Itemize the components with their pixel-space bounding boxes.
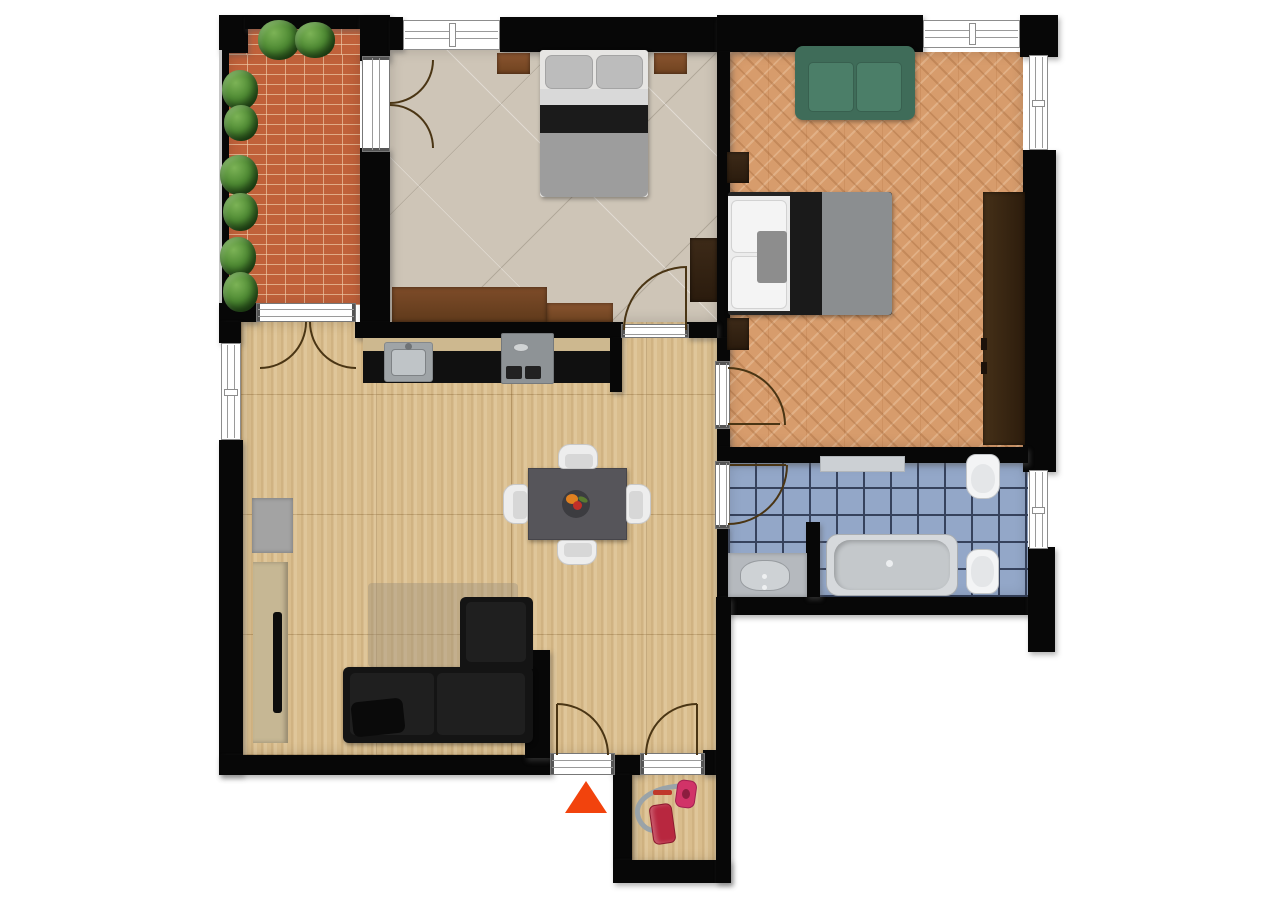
bedroom1-bed-pillow-right (596, 55, 643, 89)
wall-corner-tr (1020, 15, 1058, 57)
bedroom2-bed-blanket-band (790, 192, 822, 315)
washbasin-drain (762, 585, 767, 590)
dining-chair-right (626, 484, 651, 524)
plant-icon (295, 22, 335, 58)
dining-chair-left (503, 484, 528, 524)
vacuum-handle-bar (653, 790, 672, 795)
entrance-arrow-icon (565, 781, 607, 813)
vacuum-dust-hole (682, 789, 690, 799)
wall-living-bedroom2-b (717, 428, 730, 447)
plant-icon (220, 155, 258, 195)
chair-seat (564, 543, 592, 557)
wall-kitchen-stub (610, 338, 622, 392)
plant-icon (224, 105, 258, 141)
wall-living-bottom (219, 755, 552, 775)
wall-entry-door2-right (703, 750, 717, 775)
storage-door-frame (640, 753, 705, 775)
floor-plan (0, 0, 1280, 905)
wall-storage-bottom (613, 860, 731, 883)
balcony-bedroom1-door-frame (362, 56, 390, 152)
wall-balcony-corner-tl (219, 15, 248, 53)
bedroom2-wardrobe-knob (981, 362, 987, 374)
bedroom2-wardrobe-knob (981, 338, 987, 350)
plant-icon (220, 237, 256, 277)
plant-icon (222, 70, 258, 110)
chair-seat (565, 454, 593, 468)
bedroom1-door-leaf (685, 268, 687, 330)
bedroom1-wardrobe (690, 238, 717, 302)
kitchen-sink-basin (391, 349, 426, 376)
bedroom2-wardrobe (983, 192, 1025, 445)
bedroom1-bed-duvet (540, 133, 648, 197)
bedroom2-nightstand-bottom (727, 318, 749, 350)
wall-living-left-upper (219, 322, 241, 343)
wall-bathroom-partition (806, 522, 820, 597)
balcony-living-door-frame (256, 303, 356, 322)
plant-icon (223, 272, 258, 312)
wall-right-upper (1023, 150, 1056, 472)
wall-balcony-right-top (360, 15, 390, 61)
kitchen-faucet-icon (405, 343, 412, 350)
gray-cabinet (252, 498, 293, 553)
bidet-inner (971, 556, 994, 587)
bedroom2-bed-duvet (822, 192, 892, 315)
bedroom2-right-window (1029, 55, 1048, 150)
black-sofa-cushion (437, 673, 525, 735)
wall-bedroom1-living-left (355, 322, 623, 338)
stove-burner (506, 366, 522, 379)
bedroom1-bed-sheet (540, 89, 648, 105)
washbasin-faucet-icon (762, 574, 767, 579)
entrance-door-leaf (556, 704, 558, 755)
fruit-apple (573, 501, 582, 510)
toilet-bowl-inner (971, 464, 995, 493)
living-room-window (221, 343, 241, 440)
bedroom2-bed-runner-pillow (757, 231, 787, 283)
entrance-door-frame (550, 753, 615, 775)
bedroom1-bed-blanket-band (540, 105, 648, 133)
bedroom2-green-sofa-cushion-left (808, 62, 854, 112)
bedroom1-dresser-short (547, 303, 613, 322)
plant-icon (223, 193, 258, 231)
bedroom1-nightstand-left (497, 53, 530, 74)
bedroom1-bed-pillow-left (545, 55, 593, 89)
stove-control-oval (513, 343, 529, 352)
wall-bedroom1-top-left (390, 17, 403, 50)
plant-icon (258, 20, 300, 60)
wall-between-entry-doors (611, 755, 642, 775)
bedroom1-nightstand-right (654, 53, 687, 74)
wall-balcony-right-bottom (360, 148, 390, 322)
dining-chair-bottom (557, 540, 597, 565)
black-sofa-back-cushion (466, 602, 526, 662)
wall-bathroom-bottom (717, 597, 1030, 615)
bedroom1-window (403, 20, 500, 50)
wall-right-of-living-lower (716, 597, 731, 883)
dining-chair-top (558, 444, 598, 469)
bedroom2-top-window (923, 20, 1020, 48)
bedroom2-green-sofa-cushion-right (856, 62, 902, 112)
wall-living-left-lower (219, 440, 243, 775)
sofa-throw-pillow (350, 697, 405, 737)
wall-right-lower-corner (1028, 547, 1055, 652)
bathroom-door-leaf (730, 464, 786, 466)
storage-door-leaf (696, 704, 698, 755)
stove-burner (525, 366, 541, 379)
wall-bedroom1-top-right (500, 17, 717, 52)
tv (273, 612, 282, 713)
wall-bathroom-left-lower (717, 527, 728, 597)
wall-bedroom1-living-right (687, 322, 717, 338)
chair-seat (513, 491, 527, 519)
bathroom-shelf (820, 456, 905, 472)
bathroom-window (1029, 470, 1048, 549)
bedroom2-door-leaf (728, 423, 780, 425)
tv-sideboard (253, 562, 288, 743)
chair-seat (629, 491, 643, 519)
bathtub-drain (886, 560, 893, 567)
bedroom1-dresser-long (392, 287, 547, 322)
bedroom2-nightstand-top (727, 152, 749, 183)
